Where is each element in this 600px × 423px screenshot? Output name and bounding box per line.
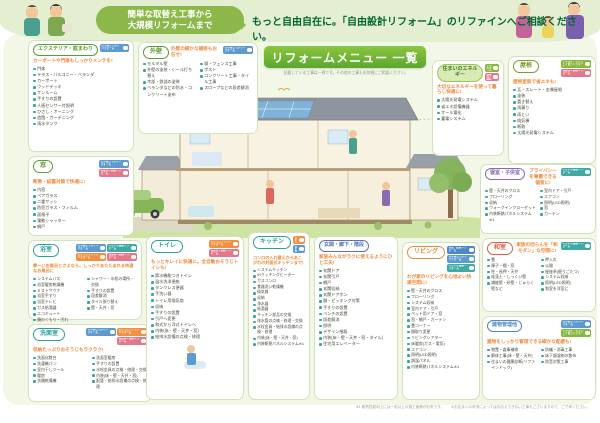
menu-item: 網戸 (33, 224, 129, 230)
reform-type-badge: お手軽しっかりリフォーム (447, 255, 475, 263)
bullet-icon (319, 313, 322, 316)
reform-type-badge: 無理なく節約リフォーム (107, 253, 137, 261)
category-caption: 寒〜いお風呂とさよなら。しっかりあたたまれる快適なお風呂に (33, 263, 137, 274)
bullet-icon (33, 189, 36, 192)
bullet-icon (151, 275, 154, 278)
menu-item: 衣類乾燥機 (33, 378, 88, 384)
reform-type-badge-label: 無理なく節約リフォーム (109, 254, 131, 260)
header-bubble: 簡単な取替え工事から 大規模リフォームまで (96, 6, 244, 34)
reform-type-badge: お手軽しっかりリフォーム (223, 46, 253, 54)
bullet-icon (407, 325, 410, 328)
menu-item-label: 防音対策工事 (545, 359, 568, 365)
bullet-icon (407, 354, 410, 357)
bullet-icon (319, 294, 322, 297)
bullet-icon (143, 63, 146, 66)
page-title: リフォームメニュー 一覧 (264, 46, 426, 68)
reform-type-badge-label: 無理なく節約リフォーム (101, 170, 123, 176)
menu-item: 水栓金具・給排水設備の点検・修理 (253, 325, 305, 336)
menu-item: 和室を洋室に (541, 286, 591, 292)
menu-item: 繊維壁・砂壁・じゅらく壁など (487, 280, 537, 292)
bullet-icon (92, 380, 95, 383)
bullet-icon (319, 300, 322, 303)
bullet-icon (200, 63, 203, 66)
bullet-icon (541, 349, 544, 352)
menu-item: カーテン (540, 211, 591, 217)
bullet-icon (253, 298, 256, 301)
bullet-icon (540, 207, 543, 210)
reform-type-badge: お手軽しっかりリフォーム (100, 44, 129, 52)
bullet-icon (151, 330, 154, 333)
menu-item-label: 外壁の塗装・シール打ち替え (147, 67, 196, 79)
bullet-icon (319, 343, 322, 346)
bullet-icon (485, 213, 488, 216)
bullet-icon (253, 292, 256, 295)
menu-item: 防音対策工事 (541, 359, 591, 365)
reform-type-badge-label: おそうじラクラクリフォーム (78, 254, 100, 260)
menu-item-label: 水栓金具・給排水設備の点検・修理 (257, 325, 305, 336)
menu-item: シャワー・水栓の場所・交換 (87, 276, 137, 288)
bubble-line2: 大規模リフォームまで (128, 20, 213, 30)
menu-item: 壁・天井・窓 (87, 305, 137, 311)
reform-type-badge: 無理なく節約リフォーム (485, 73, 499, 81)
menu-item-label: 太陽光発電システム (517, 130, 554, 136)
footnote-1: ※1 断熱性能向上には一定以上の施工面積が目安です。 (356, 405, 444, 409)
reform-type-badge: お手軽しっかりリフォーム (76, 244, 106, 252)
bullet-icon (33, 68, 36, 71)
menu-item: ベランダなどの防水・コンクリート塗布 (143, 85, 196, 97)
bullet-icon (151, 318, 154, 321)
bullet-icon (33, 278, 36, 281)
bullet-icon (407, 366, 410, 369)
bullet-icon (92, 363, 95, 366)
bullet-icon (253, 275, 256, 278)
reform-type-badge: 無理なく節約リフォーム (561, 69, 591, 77)
reform-type-badge: いきいき健康リフォーム (561, 242, 591, 250)
menu-item: 蓄電システム (437, 116, 499, 122)
menu-item-label: 住まいの健康診断(リファインドック) (491, 359, 537, 371)
bullet-icon (487, 355, 490, 358)
menu-item: 内装断熱パネルシステム※1 (253, 342, 305, 348)
category-caption: 家族みんながラクに使えるようにひと工夫! (319, 254, 393, 266)
reform-type-badge-label: おそうじラクラクリフォーム (119, 329, 141, 335)
bullet-icon (513, 113, 516, 116)
menu-item: 住宅用エレベーター (319, 341, 393, 347)
reform-type-badge-label: おそうじラクラクリフォーム (211, 241, 233, 247)
menu-item: 内装断熱パネルシステム※1 (407, 364, 475, 370)
bullet-icon (407, 302, 410, 305)
bullet-icon (87, 301, 90, 304)
kettle-icon (585, 71, 590, 76)
menu-item-label: 内装断熱パネルシステム※1 (257, 342, 304, 348)
item-list: 節水機能つきトイレ温水洗浄便座タンクレス便器手洗い器トイレ用換気扇収納手すりの設… (151, 273, 239, 341)
kettle-icon (493, 75, 498, 80)
reform-menu-poster: 簡単な取替え工事から 大規模リフォームまで もっと自由自在に。「自由設計リフォー… (0, 0, 600, 423)
bullet-icon (33, 86, 36, 89)
bullet-icon (33, 74, 36, 77)
bullet-icon (33, 380, 36, 383)
item-list: 洗面化粧台洗濯機パン室内干しツール暖房衣類乾燥機 (33, 355, 88, 390)
reform-type-badge: 断熱・結露リフォーム (447, 246, 475, 254)
bullet-icon (540, 190, 543, 193)
bullet-icon (33, 290, 36, 293)
reform-type-badge-label: 無理なく節約リフォーム (563, 70, 585, 76)
bullet-icon (513, 107, 516, 110)
category-box-exterior: エクステリア・庭まわり お手軽しっかりリフォーム カーポートや門扉もしっかりメン… (28, 40, 134, 152)
bullet-icon (253, 281, 256, 284)
bullet-icon (33, 374, 36, 377)
bullet-icon (33, 104, 36, 107)
reform-type-badge: 無理なく節約リフォーム (117, 337, 147, 345)
soap-icon (233, 242, 238, 247)
bullet-icon (487, 271, 490, 274)
kettle-icon (131, 255, 136, 260)
bullet-icon (33, 213, 36, 216)
bullet-icon (541, 271, 544, 274)
reform-type-badge-label: 断熱・結露リフォーム (449, 247, 468, 253)
bullet-icon (151, 281, 154, 284)
item-list: 押入れ仏間掘座卓(掘りごたつ)システム収納照明(LED照明)和室を洋室に (541, 257, 591, 292)
menu-item: 住まいの健康診断(リファインドック) (487, 359, 537, 371)
family-illustration-left (18, 4, 76, 38)
category-label-living: リビング (407, 246, 445, 259)
bullet-icon (513, 89, 516, 92)
footnote-2: ※お住まいの状況によってはお応えできない工事もございますので、ご了承ください。 (451, 405, 590, 409)
bullet-icon (407, 313, 410, 316)
bullet-icon (407, 296, 410, 299)
category-label-japanese-room: 和室 (487, 242, 513, 255)
bullet-icon (485, 202, 488, 205)
people-icon (247, 48, 252, 53)
bullet-icon (151, 336, 154, 339)
menu-item: 内装断熱パネルシステム※1 (485, 211, 536, 223)
soap-icon (299, 238, 304, 243)
bullet-icon (92, 357, 95, 360)
kettle-icon (123, 171, 128, 176)
category-caption: 外壁の細かな補修もお任せ! (171, 46, 221, 58)
reform-type-badge-label: エネルギーをかしこく使うリフォーム (486, 65, 492, 71)
bullet-icon (407, 360, 410, 363)
reform-type-badge-label: お手軽しっかりリフォーム (563, 321, 585, 327)
reform-type-badge-label: お手軽しっかりリフォーム (101, 45, 122, 51)
item-list: システムバス浴室暖房乾燥機ミストサウナ浴室手すり浴室テレビガス給湯器エコキュート… (33, 276, 83, 323)
bullet-icon (437, 105, 440, 108)
bullet-icon (319, 337, 322, 340)
people-icon (469, 257, 474, 262)
item-list: 内窓ペアガラス二重サッシ防犯ガラス・フィルム面格子電動シャッター網戸 (33, 187, 129, 230)
bullet-icon (407, 319, 410, 322)
category-label-bedroom: 寝室・子供室 (485, 168, 525, 180)
bullet-icon (33, 307, 36, 310)
bullet-icon (253, 338, 256, 341)
bullet-icon (487, 349, 490, 352)
people-icon (123, 46, 128, 51)
bullet-icon (33, 207, 36, 210)
hearts-icon (469, 266, 474, 271)
footnote: ※1 断熱性能向上には一定以上の施工面積が目安です。 ※お住まいの状況によっては… (150, 405, 590, 410)
category-label-roof: 屋根 (513, 60, 539, 73)
leaf-icon (585, 62, 590, 67)
reform-type-badge-label: いきいき健康リフォーム (109, 245, 131, 251)
category-caption: コンロの入れ替えからあこがれの対面式キッチンまで! (253, 255, 305, 266)
bullet-icon (541, 361, 544, 364)
menu-item: 給排水設備の点検・修理 (151, 334, 239, 340)
reform-type-badge: いきいき健康リフォーム (561, 168, 591, 176)
reform-type-badge-label: エネルギーをかしこく使うリフォーム (563, 330, 585, 336)
bullet-icon (33, 319, 36, 322)
menu-item-label: 蓄電システム (441, 116, 465, 122)
item-list: 室内ドア・引戸エアコン照明(LED照明)窓カーテン (540, 188, 591, 223)
category-label-building: 建物管理他 (487, 320, 522, 332)
bullet-icon (143, 69, 146, 72)
badge-group: お手軽しっかりリフォーム (223, 46, 253, 54)
menu-item-label: 網戸 (37, 224, 45, 230)
badge-group: おそうじラクラクリフォームお手軽しっかりリフォーム (293, 236, 305, 253)
bullet-icon (541, 355, 544, 358)
people-icon (110, 330, 115, 335)
category-label-window: 窓 (33, 160, 53, 173)
people-icon (585, 322, 590, 327)
bullet-icon (33, 98, 36, 101)
menu-item-label: 住宅用エレベーター (323, 341, 360, 347)
bullet-icon (540, 202, 543, 205)
reform-type-badge: お手軽しっかりリフォーム (293, 245, 305, 253)
snow-icon (469, 248, 474, 253)
bullet-icon (253, 309, 256, 312)
bullet-icon (407, 290, 410, 293)
bullet-icon (253, 343, 256, 346)
bullet-icon (487, 361, 490, 364)
badge-group: いきいき健康リフォーム (561, 168, 591, 176)
people-icon (100, 246, 105, 251)
bullet-icon (485, 196, 488, 199)
reform-type-badge: エネルギーをかしこく使うリフォーム (561, 60, 591, 68)
category-box-toilet: トイレ おそうじラクラクリフォーム無理なく節約リフォーム もっとキレイに快適に。… (146, 236, 244, 400)
kettle-icon (233, 251, 238, 256)
category-caption: カーポートや門扉もしっかりメンテを! (33, 58, 129, 64)
category-label-entrance: 玄関・廊下・階段 (319, 240, 369, 252)
menu-item-label: スロープなどの段差解消 (204, 85, 249, 91)
kettle-icon (141, 339, 146, 344)
people-icon (299, 247, 304, 252)
bullet-icon (319, 288, 322, 291)
bullet-icon (540, 213, 543, 216)
bullet-icon (407, 337, 410, 340)
bullet-icon (33, 295, 36, 298)
item-list: 防蟻・消毒工事床下調湿剤の散布防音対策工事 (541, 347, 591, 370)
bullet-icon (319, 282, 322, 285)
reform-type-badge-label: お手軽しっかりリフォーム (225, 47, 247, 53)
bullet-icon (33, 357, 36, 360)
item-list: 物置・倉庫補修解体工事(床・壁・天井)住まいの健康診断(リファインドック) (487, 347, 537, 370)
bullet-icon (92, 374, 95, 377)
badge-group: お手軽しっかりリフォームいきいき健康リフォームおそうじラクラクリフォーム無理なく… (61, 244, 137, 261)
menu-item: 太陽光発電システム (513, 130, 591, 136)
bullet-icon (437, 118, 440, 121)
menu-item-label: 内装断熱パネルシステム※1 (489, 211, 536, 223)
menu-item-label: 和室を洋室に (545, 286, 568, 292)
bullet-icon (487, 265, 490, 268)
bullet-icon (33, 220, 36, 223)
badge-group: お手軽しっかりリフォームおそうじラクラクリフォーム無理なく節約リフォーム (67, 328, 147, 345)
reform-type-badge: エネルギーをかしこく使うリフォーム (485, 64, 499, 72)
category-box-bedroom: 寝室・子供室 プライバシーを尊重できる個室に! いきいき健康リフォーム 壁・天井… (480, 164, 596, 234)
item-list: 壁・天井のクロスフローリング収納ウォークインクローゼット内装断熱パネルシステム※… (485, 188, 536, 223)
menu-item-label: 雨水タンク (37, 121, 57, 127)
bullet-icon (319, 325, 322, 328)
item-list: 瓦・スレート・金属屋根塗装葺き替え雨漏り雨とい換気棟断熱太陽光発電システム (513, 87, 591, 136)
badge-group: 断熱・結露リフォームお手軽しっかりリフォームいきいき健康リフォーム (447, 246, 475, 272)
bullet-icon (540, 196, 543, 199)
bullet-icon (319, 319, 322, 322)
badge-group: おそうじラクラクリフォーム無理なく節約リフォーム (209, 240, 239, 257)
category-box-living: リビング 断熱・結露リフォームお手軽しっかりリフォームいきいき健康リフォーム わ… (402, 242, 480, 400)
category-box-outer-wall: 外壁 外壁の細かな補修もお任せ! お手軽しっかりリフォーム モルタル壁外壁の塗装… (138, 42, 258, 134)
hearts-icon (585, 244, 590, 249)
reform-type-badge: 無理なく節約リフォーム (209, 249, 239, 257)
bullet-icon (541, 288, 544, 291)
reform-type-badge-label: 無理なく節約リフォーム (211, 250, 233, 256)
menu-item-label: 配管・給排水設備の点検・修理 (96, 378, 147, 390)
category-box-roof: 屋根 エネルギーをかしこく使うリフォーム無理なく節約リフォーム 屋根塗装で省エネ… (508, 56, 596, 164)
menu-item-label: 給排水設備の点検・修理 (155, 334, 200, 340)
reform-type-badge-label: 無理なく節約リフォーム (119, 338, 141, 344)
bullet-icon (151, 293, 154, 296)
category-label-outer-wall: 外壁 (143, 46, 169, 59)
reform-type-badge: おそうじラクラクリフォーム (209, 240, 239, 248)
menu-item-label: 壁・天井・窓 (91, 305, 114, 311)
menu-item-label: シャワー・水栓の場所・交換 (91, 276, 137, 288)
bullet-icon (33, 301, 36, 304)
reform-type-badge-label: 無理なく節約リフォーム (486, 74, 492, 80)
bullet-icon (319, 276, 322, 279)
people-icon (123, 162, 128, 167)
reform-type-badge: 無理なく節約リフォーム (99, 169, 129, 177)
badge-group: エネルギーをかしこく使うリフォーム無理なく節約リフォーム (561, 60, 591, 77)
badge-group: いきいき健康リフォーム (561, 242, 591, 250)
bullet-icon (253, 321, 256, 324)
reform-type-badge: お手軽しっかりリフォーム (99, 160, 129, 168)
reform-type-badge-label: おそうじラクラクリフォーム (295, 237, 298, 243)
menu-item-label: 内装断熱パネルシステム※1 (411, 364, 459, 370)
menu-item-label: カーテン (544, 211, 560, 217)
bullet-icon (143, 81, 146, 84)
bullet-icon (513, 126, 516, 129)
bullet-icon (200, 87, 203, 90)
bullet-icon (407, 331, 410, 334)
bullet-icon (151, 299, 154, 302)
bullet-icon (487, 282, 490, 285)
bullet-icon (253, 270, 256, 273)
soap-icon (141, 330, 146, 335)
bullet-icon (253, 315, 256, 318)
bullet-icon (319, 306, 322, 309)
category-caption: 断熱・結露対策で快適に! (33, 179, 129, 185)
category-caption: 大切なエネルギーを使って暮らし快適に! (437, 84, 499, 96)
bullet-icon (407, 343, 410, 346)
bullet-icon (33, 123, 36, 126)
bullet-icon (151, 306, 154, 309)
bullet-icon (407, 307, 410, 310)
bullet-icon (151, 287, 154, 290)
reform-type-badge: いきいき健康リフォーム (447, 264, 475, 272)
reform-type-badge-label: いきいき健康リフォーム (449, 265, 468, 271)
bullet-icon (541, 265, 544, 268)
item-list: 畳障子・襖・窓柱・長押・天井珪藻土・しっくい壁繊維壁・砂壁・じゅらく壁など (487, 257, 537, 292)
category-box-bathroom: 浴室 お手軽しっかりリフォームいきいき健康リフォームおそうじラクラクリフォーム無… (28, 240, 142, 320)
bullet-icon (487, 276, 490, 279)
bullet-icon (87, 307, 90, 310)
category-caption: 屋根塗装で省エネも! (513, 79, 591, 85)
badge-group: エネルギーをかしこく使うリフォーム無理なく節約リフォーム (485, 64, 499, 81)
bullet-icon (33, 117, 36, 120)
item-list: 塀・フェンス工事ポストコンクリート工事・タイル工事スロープなどの段差解消 (200, 61, 253, 98)
bullet-icon (487, 259, 490, 262)
reform-type-badge-label: いきいき健康リフォーム (563, 169, 585, 175)
bullet-icon (319, 270, 322, 273)
menu-item: 配管・給排水設備の点検・修理 (92, 378, 147, 390)
menu-item-label: 繊維壁・砂壁・じゅらく壁など (491, 280, 537, 292)
item-list: 壁・天井のクロスフローリングシステム収納室内ドア・引戸ペット用ドア・窓窓・網戸・… (407, 288, 475, 370)
reform-type-badge-label: いきいき健康リフォーム (563, 243, 585, 249)
menu-item-label: 鏡のくもり・汚れ (37, 317, 68, 323)
toilet-illustration (178, 343, 212, 373)
bullet-icon (33, 80, 36, 83)
reform-type-badge-label: お手軽しっかりリフォーム (88, 329, 110, 335)
page-title-note: 記載している工事は一例です。その他の工事もお気軽にご相談ください。 (240, 71, 452, 76)
badge-group: お手軽しっかりリフォーム無理なく節約リフォーム (99, 160, 129, 177)
hearts-icon (131, 246, 136, 251)
bullet-icon (541, 282, 544, 285)
bullet-icon (33, 226, 36, 229)
bullet-icon (513, 95, 516, 98)
menu-item-label: ベランダなどの防水・コンクリート塗布 (147, 85, 196, 97)
bullet-icon (143, 87, 146, 90)
menu-item-label: 衣類乾燥機 (37, 378, 56, 384)
item-list: 洗面室暖房手すりの設置水栓金具の点検・修理・交換内装(床・壁・天井・窓)配管・給… (92, 355, 147, 390)
bullet-icon (407, 348, 410, 351)
leaf-icon (493, 66, 498, 71)
reform-type-badge-label: エネルギーをかしこく使うリフォーム (563, 61, 585, 67)
bullet-icon (541, 259, 544, 262)
bullet-icon (541, 276, 544, 279)
header-title: もっと自由自在に。「自由設計リフォーム」のリファインへご相談ください。 (252, 13, 582, 43)
reform-type-badge: お手軽しっかりリフォーム (561, 320, 591, 328)
bullet-icon (200, 75, 203, 78)
soap-icon (100, 255, 105, 260)
hearts-icon (585, 170, 590, 175)
category-box-building: 建物管理他 お手軽しっかりリフォームエネルギーをかしこく使うリフォーム 建物をし… (482, 316, 596, 400)
bullet-icon (33, 111, 36, 114)
item-list: モルタル壁外壁の塗装・シール打ち替え木部・鉄部の塗装ベランダなどの防水・コンクリ… (143, 61, 196, 98)
reform-type-badge-label: お手軽しっかりリフォーム (78, 245, 100, 251)
bullet-icon (92, 369, 95, 372)
category-caption: もっとキレイに快適に。全自動おそうじトイレも! (151, 259, 239, 271)
category-box-japanese-room: 和室 家族の団らんを「和モダン」な空間に! いきいき健康リフォーム 畳障子・襖・… (482, 238, 596, 312)
item-list: システムキッチンIHクッキングヒーターガスコンロ食器洗い乾燥機換気扇収納浄水器給… (253, 268, 305, 348)
bullet-icon (485, 207, 488, 210)
item-list: シャワー・水栓の場所・交換手すりの設置段差解消タイル張り替え壁・天井・窓 (87, 276, 137, 323)
bullet-icon (200, 69, 203, 72)
bullet-icon (33, 92, 36, 95)
bullet-icon (513, 132, 516, 135)
bullet-icon (151, 312, 154, 315)
bullet-icon (87, 295, 90, 298)
bullet-icon (33, 284, 36, 287)
bullet-icon (253, 326, 256, 329)
reform-type-badge-label: お手軽しっかりリフォーム (101, 161, 123, 167)
bullet-icon (253, 304, 256, 307)
bullet-icon (33, 369, 36, 372)
